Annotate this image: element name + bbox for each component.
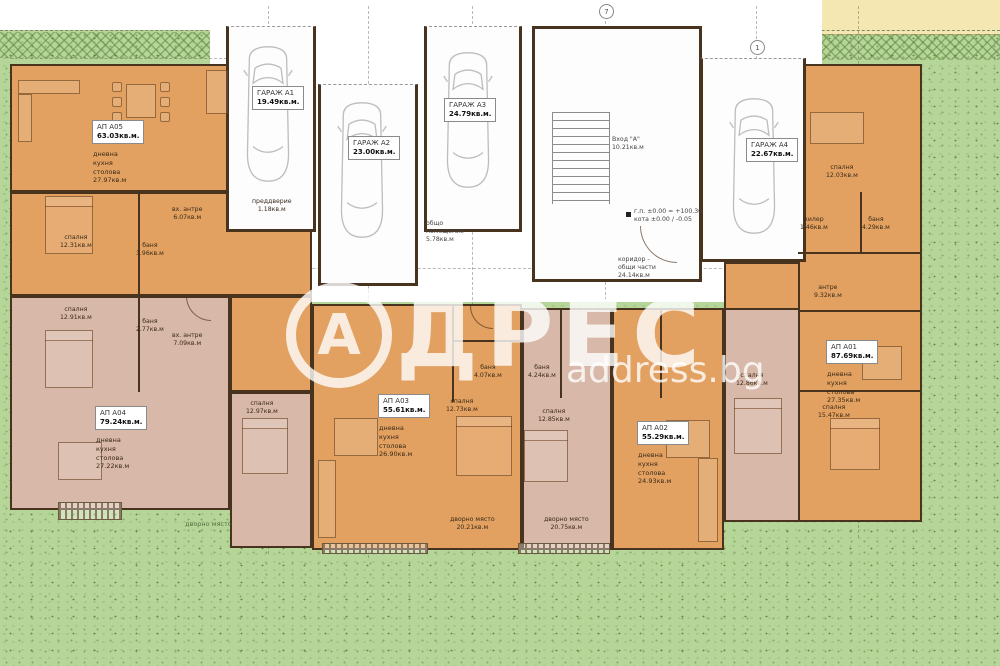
entrance-label: Вход "А"10.21кв.м [612,136,644,152]
entrance-area: 10.21кв.м [612,144,644,152]
room-name: дворно място [450,516,495,524]
bed [830,418,880,470]
floor-plan: 7 1 [0,0,1000,666]
room-area: 20.21кв.м [450,524,495,532]
elevation-label: г.п. ±0.00 = +100.30кота ±0.00 / -0.05 [634,208,702,224]
room-line: кухня [638,460,671,469]
room-name: спалня [60,234,92,242]
room-label: спалня15.47кв.м [818,404,850,420]
elevation-line: г.п. ±0.00 = +100.30 [634,208,702,216]
partition-wall [560,308,562,398]
corridor-line: общи части [618,264,656,272]
kitchen-counter [206,70,228,114]
storage-line: общо [426,220,464,228]
room-line: кухня [379,433,412,442]
storage-area: 5.78кв.м [426,236,464,244]
room-area: 24.93кв.м [638,477,671,486]
room-name: спалня [538,408,570,416]
bed [242,418,288,474]
room-label: спалня12.86кв.м [736,372,768,388]
room-name: антре [814,284,842,292]
room-area: 12.97кв.м [246,408,278,416]
apartment-a03-label: АП А0355.61кв.м. [378,394,430,418]
bed [734,398,782,454]
room-name: спалня [246,400,278,408]
room-name: баня [474,364,502,372]
car-icon [240,40,296,188]
apartment-a04-block [10,296,230,510]
room-line: столова [96,454,129,463]
axis-bubble: 7 [599,4,614,19]
dining-chair [112,82,122,92]
room-area: 7.09кв.м [172,340,202,348]
room-area: 12.31кв.м [60,242,92,250]
room-name: вх. антре [172,332,202,340]
room-name: спалня [826,164,858,172]
partition-wall [452,340,522,342]
room-line: столова [638,469,671,478]
room-line: столова [93,168,126,177]
living-label-a02: дневнакухнястолова24.93кв.м [638,451,671,486]
dining-chair [160,112,170,122]
car-icon [726,92,782,240]
room-label: спалня12.03кв.м [826,164,858,180]
room-label: антре9.32кв.м [814,284,842,300]
room-area: 12.03кв.м [826,172,858,180]
room-name: баня [528,364,556,372]
room-area: 3.96кв.м [136,250,164,258]
room-area: 12.85кв.м [538,416,570,424]
room-name: баня [136,318,164,326]
storage-line: помещение [426,228,464,236]
apartment-area: 87.69кв.м. [831,352,873,361]
dining-table [334,418,378,456]
car-icon [334,96,390,244]
bed [456,416,512,476]
dining-chair [160,82,170,92]
axis-number: 7 [604,8,608,16]
apartment-a02-label: АП А0255.29кв.м. [637,421,689,445]
corridor-line: коридор - [618,256,656,264]
room-name: килер [800,216,828,224]
room-area: 12.73кв.м [446,406,478,414]
room-label: баня2.77кв.м [136,318,164,334]
room-name: баня [136,242,164,250]
garage-name: ГАРАЖ А2 [353,139,395,148]
apartment-name: АП А04 [100,409,142,418]
room-area: 9.32кв.м [814,292,842,300]
room-label: килер1.46кв.м [800,216,828,232]
corridor-label: коридор -общи части24.14кв.м [618,256,656,280]
room-label: спалня12.97кв.м [246,400,278,416]
yard-label: дворно място [185,520,232,528]
room-area: 4.29кв.м [862,224,890,232]
room-area: 15.47кв.м [818,412,850,420]
living-label-a05: дневнакухнястолова27.97кв.м [93,150,126,185]
apartment-area: 55.29кв.м. [642,433,684,442]
apartment-a01-label: АП А0187.69кв.м. [826,340,878,364]
room-label: баня4.29кв.м [862,216,890,232]
room-label: баня3.96кв.м [136,242,164,258]
room-name: спалня [446,398,478,406]
storage-label: общопомещение5.78кв.м [426,220,464,244]
dining-chair [112,97,122,107]
room-area: 1.18кв.м [252,206,292,214]
room-area: 27.22кв.м [96,462,129,471]
room-area: 2.77кв.м [136,326,164,334]
room-area: 1.46кв.м [800,224,828,232]
apartment-area: 63.03кв.м. [97,132,139,141]
garage-a1-label: ГАРАЖ А119.49кв.м. [252,86,304,110]
partition-wall [798,310,922,312]
room-name: спалня [736,372,768,380]
garage-name: ГАРАЖ А1 [257,89,299,98]
apartment-a05-label: АП А0563.03кв.м. [92,120,144,144]
partition-wall [452,304,454,402]
hedge-left [0,32,212,58]
garage-area: 23.00кв.м. [353,148,395,157]
bed [810,112,864,144]
room-label: баня4.07кв.м [474,364,502,380]
neighbor-unit-mid-block [522,308,612,550]
room-label: вх. антре6.07кв.м [172,206,202,222]
room-name: баня [862,216,890,224]
room-line: столова [379,442,412,451]
terrace-steps [518,543,610,554]
sofa [18,80,80,94]
room-line: кухня [96,445,129,454]
garage-a4-label: ГАРАЖ А422.67кв.м. [746,138,798,162]
entry-column-block [230,296,312,392]
room-line: кухня [827,379,860,388]
axis-bubble: 1 [750,40,765,55]
room-line: дневна [379,424,412,433]
sofa [18,94,32,142]
room-line: дневна [827,370,860,379]
apartment-name: АП А05 [97,123,139,132]
living-label-a04: дневнакухнястолова27.22кв.м [96,436,129,471]
room-line: столова [827,388,860,397]
grid-line [10,58,232,59]
living-label-a03: дневнакухнястолова26.90кв.м [379,424,412,459]
bed [45,330,93,388]
garage-area: 19.49кв.м. [257,98,299,107]
corridor-area: 24.14кв.м [618,272,656,280]
garage-area: 22.67кв.м. [751,150,793,159]
room-label: дворно място20.21кв.м [450,516,495,532]
room-line: дневна [96,436,129,445]
elevation-line: кота ±0.00 / -0.05 [634,216,702,224]
terrace-steps [322,543,428,554]
room-area: 12.86кв.м [736,380,768,388]
bed [524,430,568,482]
sofa [698,458,718,542]
apartment-name: АП А03 [383,397,425,406]
elevation-mark [626,212,631,217]
room-name: преддверие [252,198,292,206]
room-area: 27.97кв.м [93,176,126,185]
garage-name: ГАРАЖ А4 [751,141,793,150]
room-name: дворно място [544,516,589,524]
room-line: кухня [93,159,126,168]
entrance-name: Вход "А" [612,136,644,144]
room-area: 12.91кв.м [60,314,92,322]
room-name: спалня [818,404,850,412]
room-area: 6.07кв.м [172,214,202,222]
hedge-right [822,34,1000,60]
apartment-area: 55.61кв.м. [383,406,425,415]
room-label: баня4.24кв.м [528,364,556,380]
room-line: дневна [638,451,671,460]
garage-area: 24.79кв.м. [449,110,491,119]
dining-table [126,84,156,118]
apartment-a04-label: АП А0479.24кв.м. [95,406,147,430]
vestibule-label: преддверие1.18кв.м [252,198,292,214]
sofa [318,460,336,538]
garage-name: ГАРАЖ А3 [449,101,491,110]
staircase [552,112,610,204]
terrace-steps [58,502,122,520]
room-area: 4.24кв.м [528,372,556,380]
room-area: 20.75кв.м [544,524,589,532]
room-area: 4.07кв.м [474,372,502,380]
apartment-area: 79.24кв.м. [100,418,142,427]
room-label: вх. антре7.09кв.м [172,332,202,348]
room-label: спалня12.91кв.м [60,306,92,322]
room-area: 26.90кв.м [379,450,412,459]
room-label: дворно място20.75кв.м [544,516,589,532]
partition-wall [138,296,140,392]
dining-chair [160,97,170,107]
apartment-a01-hall-block [724,262,800,310]
partition-wall [660,308,662,398]
living-label-a01: дневнакухнястолова27.35кв.м [827,370,860,405]
room-label: спалня12.85кв.м [538,408,570,424]
room-name: спалня [60,306,92,314]
room-name: вх. антре [172,206,202,214]
garage-a3-label: ГАРАЖ А324.79кв.м. [444,98,496,122]
axis-number: 1 [755,44,759,52]
room-label: спалня12.31кв.м [60,234,92,250]
garage-a2-label: ГАРАЖ А223.00кв.м. [348,136,400,160]
room-label: спалня12.73кв.м [446,398,478,414]
partition-wall [798,252,922,254]
room-line: дневна [93,150,126,159]
apartment-name: АП А01 [831,343,873,352]
apartment-name: АП А02 [642,424,684,433]
